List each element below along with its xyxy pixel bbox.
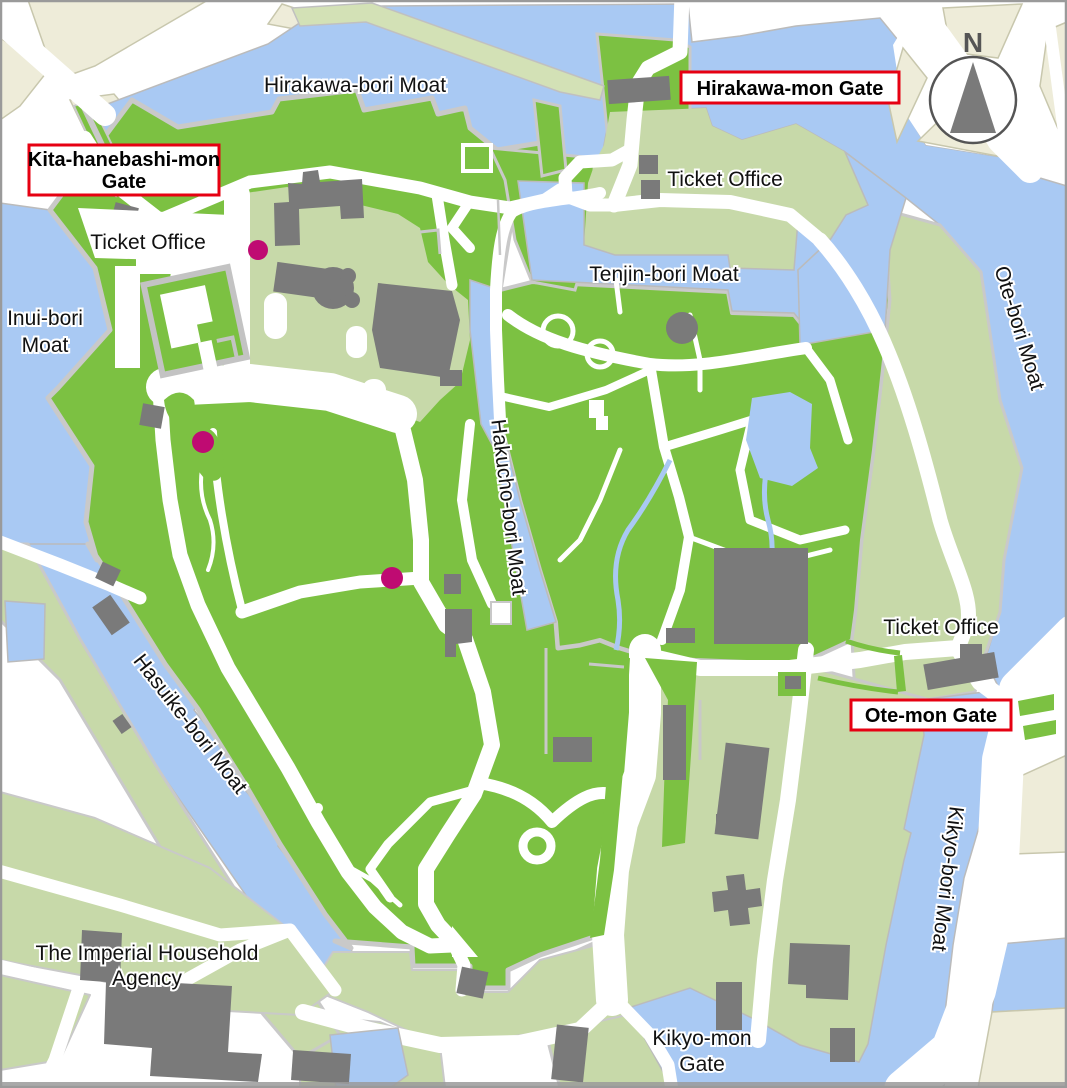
svg-text:Tenjin-bori Moat: Tenjin-bori Moat: [589, 263, 739, 286]
svg-text:Inui-bori: Inui-bori: [7, 307, 83, 330]
svg-text:Hirakawa-mon Gate: Hirakawa-mon Gate: [697, 78, 884, 100]
svg-text:Ticket Office: Ticket Office: [90, 231, 206, 254]
svg-text:Moat: Moat: [22, 334, 69, 357]
svg-text:Kita-hanebashi-mon: Kita-hanebashi-mon: [28, 149, 220, 171]
svg-text:Agency: Agency: [112, 967, 183, 990]
svg-text:Gate: Gate: [679, 1053, 725, 1076]
svg-text:Ticket Office: Ticket Office: [667, 168, 783, 191]
svg-text:Ticket Office: Ticket Office: [883, 616, 999, 639]
svg-text:Kikyo-mon: Kikyo-mon: [652, 1027, 751, 1050]
svg-text:The Imperial Household: The Imperial Household: [36, 942, 259, 965]
svg-text:N: N: [963, 27, 983, 58]
svg-text:Gate: Gate: [102, 171, 146, 193]
svg-text:Hirakawa-bori Moat: Hirakawa-bori Moat: [264, 74, 446, 97]
svg-text:Ote-mon Gate: Ote-mon Gate: [865, 705, 997, 727]
